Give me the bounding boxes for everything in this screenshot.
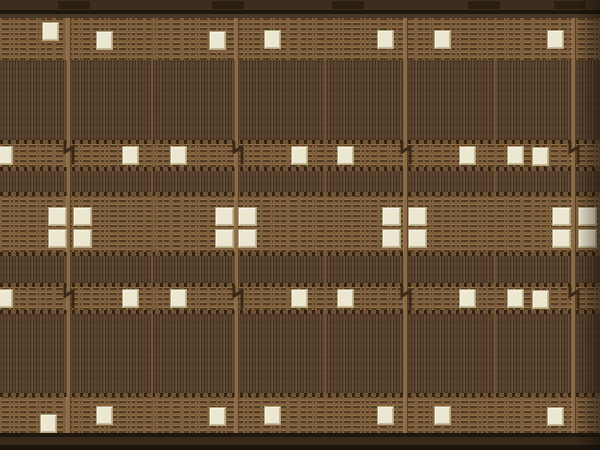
pad-row4 [377,406,394,425]
pad-cluster [73,207,92,226]
band-bottom-edge [0,445,600,450]
pad-row2 [122,146,139,165]
pad-row4 [209,407,226,426]
pad-row2 [337,146,354,165]
zigzag-glyph-icon [231,285,245,309]
pad-row3 [0,289,13,308]
zigzag-glyph-icon [567,141,581,165]
band-stripes-4 [0,314,600,393]
pad-cluster [215,207,234,226]
band-bottom-bar [0,437,600,445]
pad-row2 [507,146,524,165]
pad-row2 [170,146,187,165]
separator-minor-2 [324,18,326,433]
pad-cluster [238,229,257,248]
top-bar-segment-2 [212,1,244,9]
pad-cluster [215,229,234,248]
top-bar-segment-1 [58,1,90,9]
pad-cluster [48,207,67,226]
pad-cluster [48,229,67,248]
zigzag-glyph-icon [62,285,76,309]
zigzag-glyph-icon [231,141,245,165]
band-stripes-1 [0,60,600,140]
pad-row3 [170,289,187,308]
pad-row1 [42,22,59,41]
pad-row3 [459,289,476,308]
zigzag-glyph-icon [399,285,413,309]
separator-minor-3 [494,18,496,433]
pad-cluster [73,229,92,248]
pad-cluster [382,207,401,226]
pad-row2 [0,146,13,165]
pad-row4 [96,406,113,425]
die-photo [0,0,600,450]
pad-row1 [377,30,394,49]
band-brick-top [0,18,600,60]
zigzag-glyph-icon [567,285,581,309]
pad-row1 [264,30,281,49]
band-stripes-3 [0,256,600,283]
pad-row1 [96,31,113,50]
top-bar-segment-3 [332,1,364,9]
zigzag-glyph-icon [62,141,76,165]
pad-cluster [408,207,427,226]
pad-row1 [209,31,226,50]
pad-cluster [408,229,427,248]
pad-row3 [532,290,549,309]
pad-row3 [507,289,524,308]
pad-row2 [459,146,476,165]
zigzag-glyph-icon [399,141,413,165]
pad-row3 [337,289,354,308]
pad-row1 [434,30,451,49]
pad-row2 [532,147,549,166]
pad-cluster [382,229,401,248]
pad-row3 [291,289,308,308]
pad-cluster [552,207,571,226]
pad-cluster [578,207,597,226]
pad-row4 [40,414,57,433]
pad-cluster [578,229,597,248]
band-brick-bottom [0,397,600,433]
separator-major-4 [571,18,576,433]
band-top-bar [0,0,600,10]
pad-row4 [547,407,564,426]
band-stripes-2 [0,171,600,192]
top-bar-segment-5 [554,1,586,9]
pad-cluster [552,229,571,248]
separator-minor-1 [151,18,153,433]
pad-row3 [122,289,139,308]
pad-row4 [434,406,451,425]
pad-row2 [291,146,308,165]
pad-cluster [238,207,257,226]
top-bar-segment-4 [468,1,500,9]
pad-row4 [264,406,281,425]
pad-row1 [547,30,564,49]
